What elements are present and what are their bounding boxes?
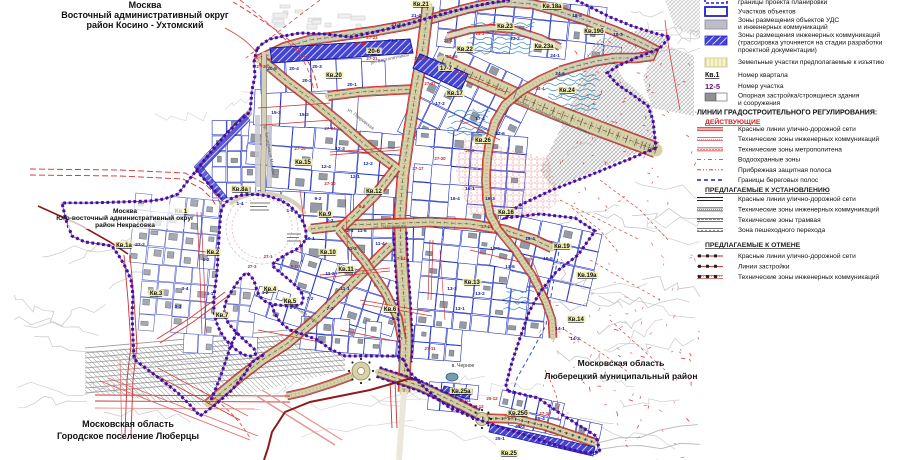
svg-text:27-13: 27-13 <box>539 411 551 416</box>
svg-text:Городское поселение Люберцы: Городское поселение Люберцы <box>57 431 199 441</box>
svg-text:Москва: Москва <box>129 0 163 10</box>
svg-text:Кв.3: Кв.3 <box>150 291 163 297</box>
svg-text:Технические зоны метрополитена: Технические зоны метрополитена <box>738 146 842 153</box>
svg-text:Кв.9: Кв.9 <box>319 212 332 218</box>
svg-text:Зоны размещения объектов УДС: Зоны размещения объектов УДС <box>738 16 839 24</box>
svg-text:и инженерных коммуникаций: и инженерных коммуникаций <box>738 23 828 31</box>
svg-text:1-4: 1-4 <box>237 201 244 207</box>
svg-text:Кв.13: Кв.13 <box>464 280 480 286</box>
svg-text:Люберецкий муниципальный район: Люберецкий муниципальный район <box>545 371 698 381</box>
svg-text:8-2: 8-2 <box>359 204 366 209</box>
svg-text:Кв.23: Кв.23 <box>497 24 513 30</box>
svg-text:5-10: 5-10 <box>291 264 300 269</box>
svg-text:Кв.15: Кв.15 <box>295 160 311 166</box>
svg-text:Номер квартала: Номер квартала <box>738 72 788 79</box>
svg-text:Кв.25а: Кв.25а <box>451 389 471 395</box>
svg-text:12-5: 12-5 <box>705 82 720 91</box>
svg-text:ПРЕДЛАГАЕМЫЕ К ОТМЕНЕ: ПРЕДЛАГАЕМЫЕ К ОТМЕНЕ <box>705 242 801 249</box>
svg-text:1-6: 1-6 <box>287 208 294 214</box>
svg-text:27-1: 27-1 <box>264 254 273 259</box>
svg-text:27-11: 27-11 <box>425 346 437 351</box>
svg-text:21-3: 21-3 <box>391 22 401 28</box>
svg-text:Кв.12: Кв.12 <box>366 189 382 195</box>
svg-text:Москва: Москва <box>113 208 137 215</box>
svg-text:27-10: 27-10 <box>324 181 336 186</box>
svg-text:Юго-восточный административный: Юго-восточный административный округ <box>56 214 194 222</box>
svg-text:ДЕЙСТВУЮЩИЕ: ДЕЙСТВУЮЩИЕ <box>705 117 761 126</box>
svg-text:27-20: 27-20 <box>434 156 446 161</box>
svg-text:11-2: 11-2 <box>325 271 335 277</box>
svg-text:район Косино - Ухтомский: район Косино - Ухтомский <box>87 20 204 30</box>
svg-text:13-6: 13-6 <box>505 264 515 270</box>
svg-text:19-5: 19-5 <box>543 256 553 262</box>
svg-text:16-4: 16-4 <box>450 196 460 202</box>
svg-text:11-3: 11-3 <box>347 246 357 252</box>
svg-text:17-6: 17-6 <box>495 131 505 137</box>
svg-text:27-34: 27-34 <box>324 126 336 131</box>
svg-text:район Некрасовка: район Некрасовка <box>95 221 155 229</box>
svg-text:Опорная застройка/строящиеся з: Опорная застройка/строящиеся здания <box>738 92 860 100</box>
svg-text:Кв.19б: Кв.19б <box>584 28 604 35</box>
svg-text:11-4: 11-4 <box>375 241 385 247</box>
svg-text:25-4: 25-4 <box>535 416 545 422</box>
svg-text:12-4: 12-4 <box>321 164 331 170</box>
svg-text:18-3: 18-3 <box>613 32 623 38</box>
svg-text:Линии застройки: Линии застройки <box>738 262 790 270</box>
svg-text:Кв.10: Кв.10 <box>320 250 336 256</box>
svg-text:24-4: 24-4 <box>536 86 545 91</box>
svg-text:21-2: 21-2 <box>388 38 398 44</box>
svg-text:в. Черное: в. Черное <box>452 363 475 369</box>
svg-text:17-7: 17-7 <box>440 66 453 72</box>
svg-text:25-3: 25-3 <box>515 424 525 430</box>
svg-text:22-4: 22-4 <box>444 38 453 43</box>
svg-text:14-1: 14-1 <box>555 326 565 332</box>
svg-text:24-1: 24-1 <box>550 53 560 59</box>
svg-text:Зона пешеходного перехода: Зона пешеходного перехода <box>738 227 826 234</box>
svg-text:Красные линии улично-дорожной: Красные линии улично-дорожной сети <box>738 125 856 133</box>
svg-text:27-15: 27-15 <box>294 146 306 151</box>
svg-text:16-3: 16-3 <box>485 196 495 202</box>
svg-text:Кв.18а: Кв.18а <box>542 4 562 10</box>
svg-text:Кв.1: Кв.1 <box>705 72 720 79</box>
svg-text:25-13: 25-13 <box>459 398 471 403</box>
svg-text:27-3: 27-3 <box>248 264 257 269</box>
svg-text:Кв.23а: Кв.23а <box>534 44 554 50</box>
svg-text:6-1: 6-1 <box>392 316 399 322</box>
svg-text:20-6: 20-6 <box>368 49 381 55</box>
svg-text:3-1: 3-1 <box>207 291 214 297</box>
svg-text:Красные линии улично-дорожной: Красные линии улично-дорожной сети <box>738 195 856 203</box>
svg-text:20-7: 20-7 <box>254 55 263 60</box>
svg-text:Кв.16: Кв.16 <box>498 210 514 216</box>
svg-text:Красные линии улично-дорожной: Красные линии улично-дорожной сети <box>738 252 856 260</box>
svg-text:17-2: 17-2 <box>435 101 445 107</box>
svg-text:Технические зоны инженерных ко: Технические зоны инженерных коммуникаций <box>738 273 880 281</box>
svg-text:9-2: 9-2 <box>315 196 322 202</box>
svg-text:1-2: 1-2 <box>203 257 210 263</box>
svg-text:3-3: 3-3 <box>175 304 182 310</box>
svg-text:27-12: 27-12 <box>472 404 484 409</box>
svg-text:17-4: 17-4 <box>475 116 485 122</box>
svg-text:проектной документации): проектной документации) <box>738 46 817 54</box>
svg-text:Кв.2: Кв.2 <box>207 250 220 256</box>
svg-text:Кв.7: Кв.7 <box>216 313 229 319</box>
svg-text:Участков объектов: Участков объектов <box>738 8 796 16</box>
svg-text:Кв.24: Кв.24 <box>559 88 575 94</box>
svg-text:(трассировка уточняется на ста: (трассировка уточняется на стадии разраб… <box>738 39 883 47</box>
svg-text:23-2: 23-2 <box>510 36 520 42</box>
svg-text:Кв.11: Кв.11 <box>338 267 354 273</box>
svg-text:2-4: 2-4 <box>347 228 354 234</box>
svg-text:Восточный административный окр: Восточный административный округ <box>61 10 229 20</box>
svg-text:27-31: 27-31 <box>354 41 366 46</box>
svg-text:12-2: 12-2 <box>363 161 373 167</box>
svg-text:27-17: 27-17 <box>412 166 424 171</box>
svg-text:27-30: 27-30 <box>256 64 268 69</box>
svg-text:27-2: 27-2 <box>135 242 145 248</box>
svg-text:21-4: 21-4 <box>411 13 421 19</box>
svg-text:Номер участка: Номер участка <box>738 83 784 90</box>
svg-text:25-15: 25-15 <box>504 414 516 419</box>
svg-text:Кв.14: Кв.14 <box>568 317 584 323</box>
svg-text:и сооружения: и сооружения <box>738 100 781 107</box>
svg-text:16-1: 16-1 <box>465 186 475 192</box>
svg-text:10-1: 10-1 <box>305 236 315 242</box>
svg-text:Кв.19: Кв.19 <box>554 244 570 250</box>
svg-text:20-3: 20-3 <box>312 64 322 70</box>
svg-text:25-12: 25-12 <box>486 396 498 401</box>
svg-text:27-14: 27-14 <box>394 256 406 261</box>
svg-text:19-4: 19-4 <box>525 236 535 242</box>
svg-text:Границы береговых полос: Границы береговых полос <box>738 176 819 184</box>
svg-text:27-26: 27-26 <box>446 54 458 59</box>
svg-text:13-3: 13-3 <box>447 286 457 292</box>
svg-text:25-1: 25-1 <box>495 436 505 442</box>
svg-text:3-4: 3-4 <box>182 286 189 292</box>
svg-text:11-6: 11-6 <box>357 228 367 234</box>
svg-text:20-4: 20-4 <box>289 66 299 72</box>
svg-text:Кв.20: Кв.20 <box>326 73 342 79</box>
svg-text:26-2: 26-2 <box>466 148 475 153</box>
svg-text:Кв.19а: Кв.19а <box>577 273 597 279</box>
svg-text:20-1: 20-1 <box>347 82 357 88</box>
svg-text:Кв.17: Кв.17 <box>447 91 463 97</box>
svg-text:2-3: 2-3 <box>327 218 334 224</box>
svg-text:18-5: 18-5 <box>572 13 582 19</box>
svg-text:27-23: 27-23 <box>366 35 378 40</box>
svg-text:Земельные участки предполагаем: Земельные участки предполагаемые к изъят… <box>738 59 884 66</box>
svg-text:4-2: 4-2 <box>262 290 269 296</box>
svg-text:Зоны размещения инженерных ком: Зоны размещения инженерных коммуникаций <box>738 31 881 39</box>
svg-text:20-2: 20-2 <box>302 78 312 84</box>
svg-text:Технические зоны инженерных ко: Технические зоны инженерных коммуникаций <box>738 205 880 213</box>
svg-text:Кв.26: Кв.26 <box>475 138 491 144</box>
svg-text:27-25: 27-25 <box>414 56 426 61</box>
svg-text:Кв.21: Кв.21 <box>413 2 429 8</box>
svg-text:23-3: 23-3 <box>476 31 485 36</box>
svg-text:Кв.22: Кв.22 <box>457 47 473 53</box>
svg-text:12-3: 12-3 <box>335 146 345 152</box>
svg-text:15-2: 15-2 <box>299 112 309 118</box>
svg-text:11-1: 11-1 <box>340 286 350 292</box>
svg-text:24-6: 24-6 <box>555 71 565 77</box>
svg-text:Технические зоны трамвая: Технические зоны трамвая <box>738 217 821 224</box>
svg-text:границы проекта планировки: границы проекта планировки <box>738 0 828 6</box>
svg-text:15-3: 15-3 <box>271 110 281 116</box>
svg-text:Московская область: Московская область <box>82 419 174 429</box>
svg-text:ПРЕДЛАГАЕМЫЕ К УСТАНОВЛЕНИЮ: ПРЕДЛАГАЕМЫЕ К УСТАНОВЛЕНИЮ <box>705 187 830 194</box>
svg-text:Московская область: Московская область <box>578 358 665 368</box>
svg-text:12-1: 12-1 <box>350 174 360 180</box>
svg-text:27-27: 27-27 <box>424 81 436 86</box>
svg-text:7-1: 7-1 <box>327 306 334 312</box>
svg-text:14-2: 14-2 <box>570 336 580 342</box>
svg-text:Кв.1а: Кв.1а <box>116 243 132 249</box>
svg-text:13-4: 13-4 <box>490 246 500 252</box>
svg-text:Кв.8а: Кв.8а <box>232 187 248 193</box>
svg-text:Кв.6: Кв.6 <box>384 307 397 313</box>
svg-text:ЛИНИИ ГРАДОСТРОИТЕЛЬНОГО РЕГУЛ: ЛИНИИ ГРАДОСТРОИТЕЛЬНОГО РЕГУЛИРОВАНИЯ: <box>697 110 877 117</box>
svg-text:Водоохранные зоны: Водоохранные зоны <box>738 157 800 164</box>
svg-text:Технические зоны инженерных ко: Технические зоны инженерных коммуникаций <box>738 135 880 143</box>
svg-text:7-2: 7-2 <box>307 296 314 302</box>
svg-text:Прибрежная защитная полоса: Прибрежная защитная полоса <box>738 166 832 174</box>
svg-text:13-1: 13-1 <box>455 306 465 312</box>
svg-text:27-18: 27-18 <box>481 224 493 229</box>
svg-text:13-2: 13-2 <box>475 291 485 297</box>
svg-text:20-5: 20-5 <box>267 66 277 72</box>
svg-text:Кв.25: Кв.25 <box>501 451 517 457</box>
